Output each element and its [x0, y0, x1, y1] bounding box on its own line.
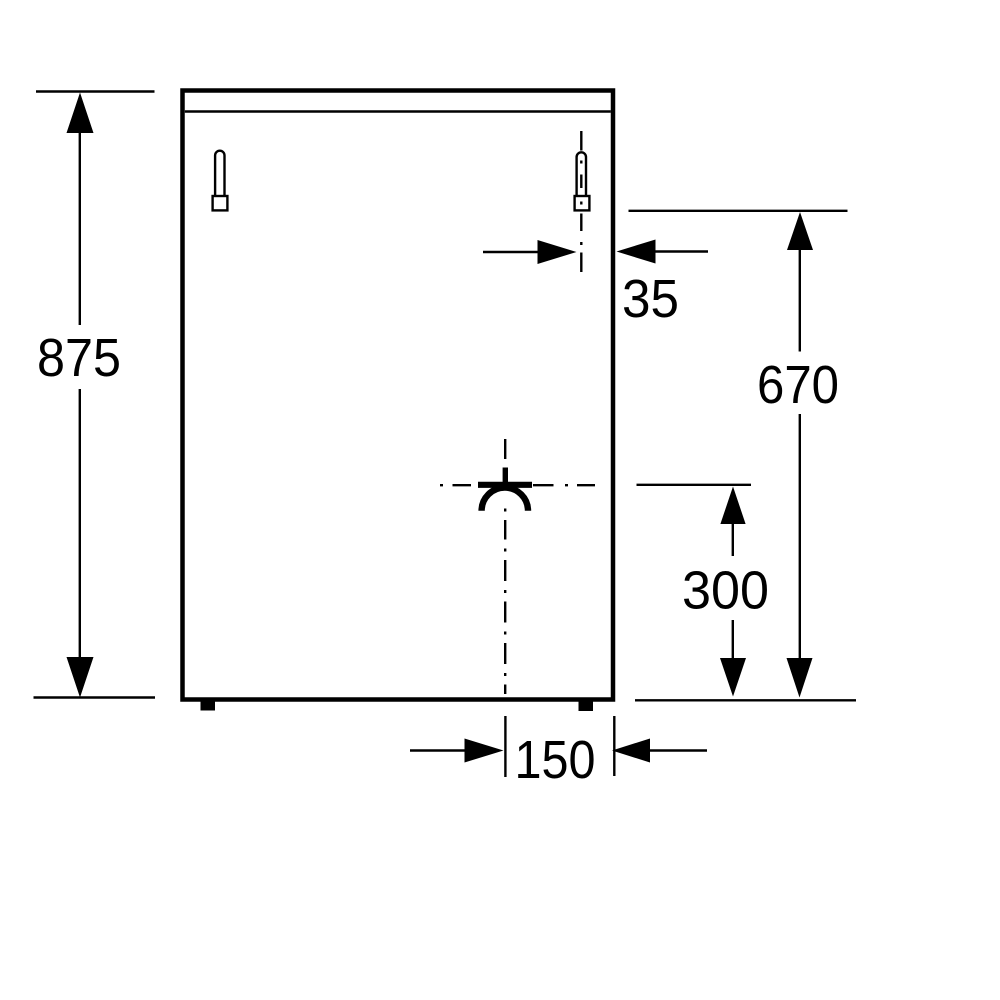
svg-text:875: 875: [37, 328, 121, 388]
svg-text:35: 35: [622, 269, 679, 329]
svg-text:150: 150: [515, 730, 596, 790]
svg-text:670: 670: [757, 355, 839, 415]
svg-text:300: 300: [682, 561, 769, 621]
